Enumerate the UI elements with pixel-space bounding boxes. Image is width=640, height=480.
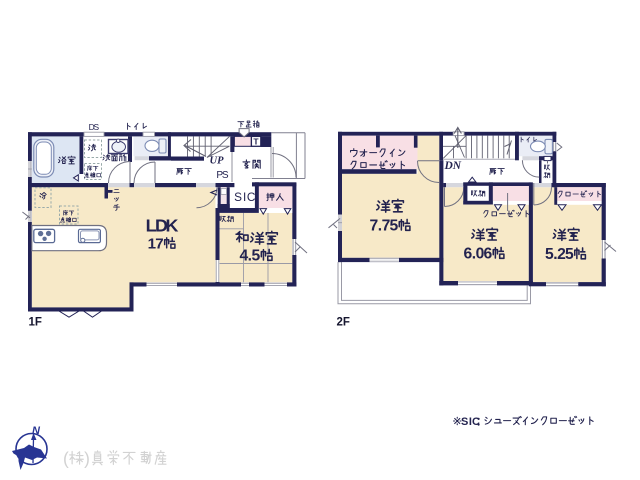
svg-text:S: S — [461, 416, 468, 428]
svg-text:7: 7 — [155, 235, 163, 252]
svg-text:DN: DN — [443, 160, 461, 172]
svg-text:5: 5 — [565, 246, 574, 263]
svg-text:K: K — [165, 215, 178, 235]
svg-text:2F: 2F — [337, 317, 350, 329]
svg-text:): ) — [84, 448, 90, 468]
svg-text:N: N — [32, 425, 41, 437]
svg-text:S: S — [222, 170, 229, 181]
svg-text:(: ( — [63, 448, 69, 468]
svg-text:：: ： — [476, 416, 487, 428]
svg-text:UP: UP — [210, 156, 225, 167]
svg-text:S: S — [94, 122, 100, 132]
svg-text:I: I — [243, 191, 246, 204]
svg-text:1F: 1F — [29, 317, 42, 329]
svg-text:C: C — [247, 191, 256, 204]
svg-text:S: S — [234, 191, 242, 204]
svg-text:5: 5 — [252, 248, 261, 265]
svg-text:6: 6 — [483, 246, 492, 263]
svg-text:T: T — [253, 137, 259, 147]
svg-text:5: 5 — [389, 218, 398, 235]
